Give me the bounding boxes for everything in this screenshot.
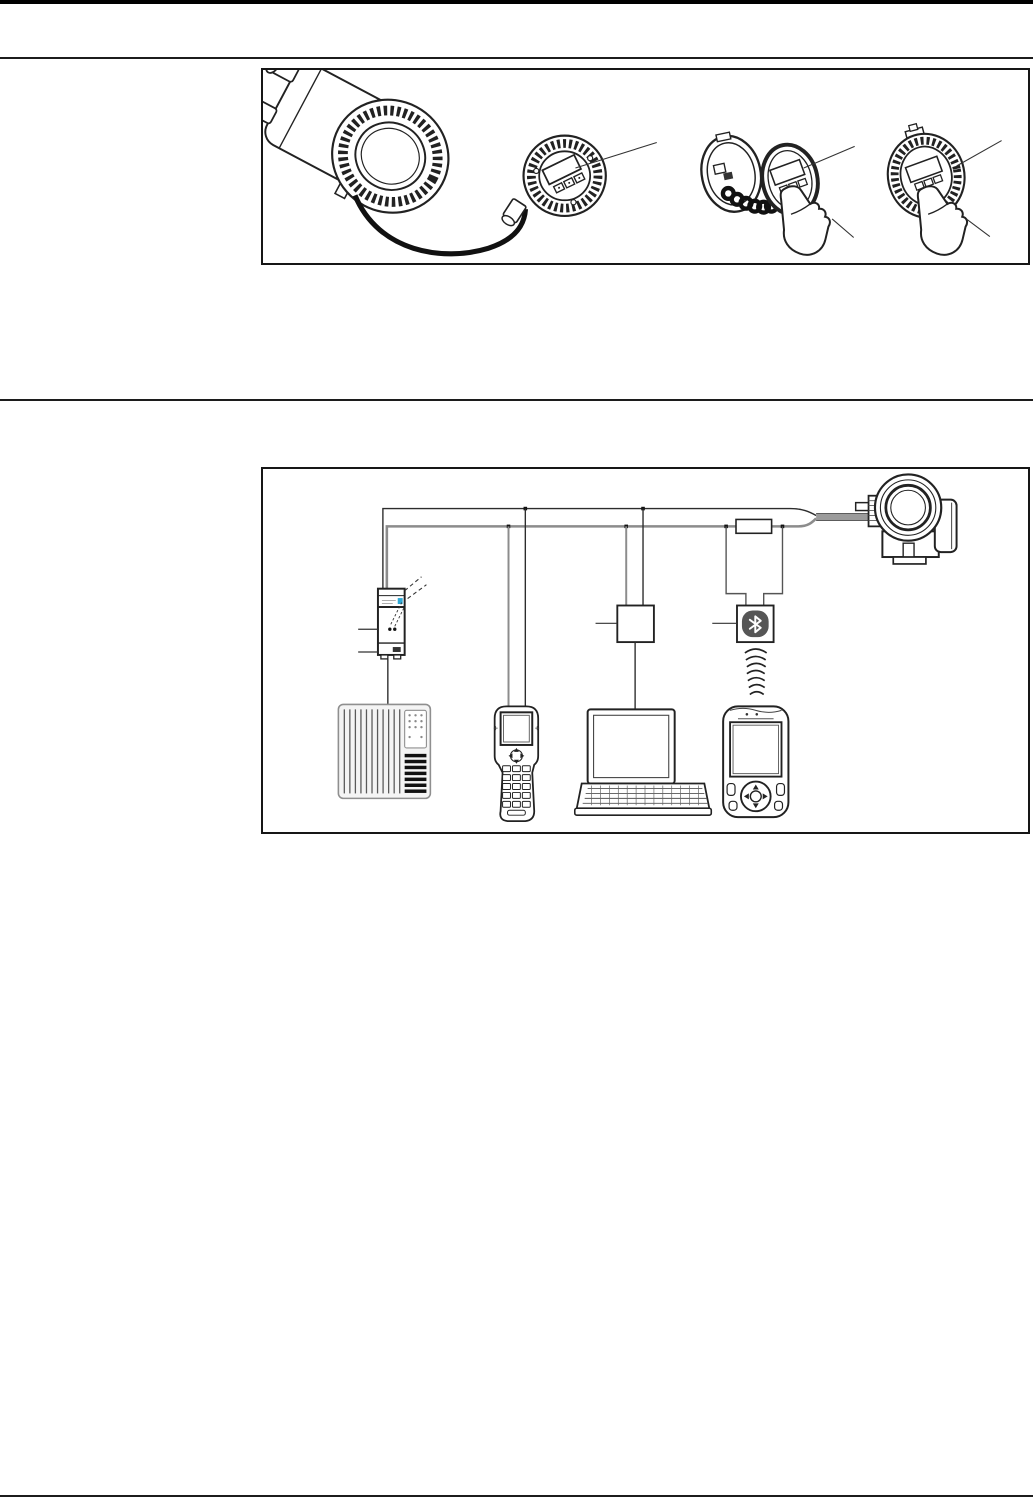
- callout-leader: [832, 219, 854, 238]
- foot: [394, 655, 401, 659]
- section-rule: [0, 399, 1033, 401]
- label-accent: [398, 598, 403, 604]
- plc-controller: [338, 704, 430, 798]
- laptop-base: [575, 808, 711, 815]
- field-communicator: [494, 706, 539, 821]
- manual-page: [0, 0, 1033, 1506]
- foot: [381, 655, 388, 659]
- pointing-hand-icon: [910, 185, 971, 258]
- callout-leader: [957, 141, 1002, 166]
- remote-display-module: [500, 136, 606, 229]
- drop-wire: [764, 526, 783, 605]
- lower-module: [393, 647, 401, 652]
- field-xpert-handheld: [723, 706, 788, 817]
- header-bar: [0, 0, 1033, 4]
- laptop-computer: [575, 709, 711, 815]
- figure-remote-operation: [261, 467, 1030, 834]
- side-key: [775, 801, 783, 810]
- wireless-signal-waves: [745, 649, 767, 694]
- dpad: [741, 782, 771, 812]
- radar-transmitter: [856, 474, 957, 564]
- terminal-dot: [388, 628, 391, 631]
- callout-leader: [966, 219, 990, 237]
- header-rule: [0, 57, 1033, 59]
- figure-display-module: [261, 68, 1030, 265]
- side-key: [729, 801, 737, 810]
- terminal-dot: [393, 628, 396, 631]
- footer-rule: [0, 1495, 1033, 1497]
- pointing-hand-icon: [773, 185, 834, 258]
- bluetooth-modem: [712, 605, 773, 642]
- drop-wire: [726, 526, 746, 605]
- power-supply-unit: [358, 577, 426, 705]
- open-cover-dashes: [405, 577, 427, 599]
- base-plate: [893, 557, 926, 564]
- figure-display-module-drawing: [263, 70, 1028, 263]
- side-key: [777, 784, 785, 796]
- load-resistor: [736, 519, 772, 533]
- figure-remote-operation-drawing: [263, 469, 1028, 832]
- side-key: [727, 784, 735, 796]
- interface-modem-box: [596, 605, 654, 709]
